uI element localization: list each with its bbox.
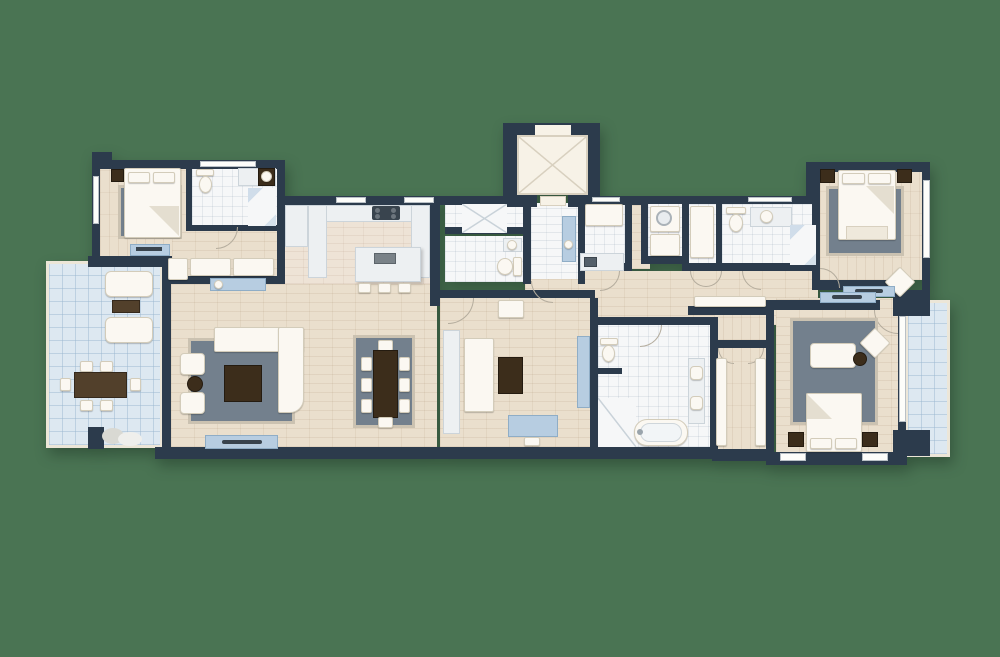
shower xyxy=(462,204,507,233)
desk xyxy=(508,415,558,437)
toilet-tank xyxy=(726,207,746,214)
elevator-door xyxy=(535,125,571,135)
wardrobe xyxy=(690,206,714,258)
lamp xyxy=(214,280,223,289)
laundry-cabinet xyxy=(585,204,623,226)
bed-pillow xyxy=(868,173,891,184)
tv xyxy=(136,247,162,251)
bed-pillow xyxy=(842,173,865,184)
bed-pillow xyxy=(128,172,150,183)
washer-drum xyxy=(656,210,672,226)
toilet xyxy=(729,214,743,232)
window xyxy=(336,197,366,203)
wall xyxy=(712,340,770,348)
side-table xyxy=(187,376,203,392)
wall xyxy=(688,306,768,315)
outdoor-chair xyxy=(80,400,93,411)
chaise-lounge xyxy=(105,271,153,297)
dining-chair xyxy=(399,378,410,392)
dining-chair xyxy=(361,378,372,392)
sofa xyxy=(810,343,856,368)
sink xyxy=(690,366,703,380)
bed-pillow xyxy=(810,438,832,449)
decorative-stones xyxy=(118,432,142,446)
wall xyxy=(766,306,774,455)
lamp xyxy=(564,240,573,249)
floor-plan-canvas xyxy=(0,0,1000,657)
front-door xyxy=(540,196,566,206)
nightstand xyxy=(788,432,804,447)
side-table xyxy=(853,352,867,366)
wall-bottom xyxy=(596,447,718,459)
bed-pillow xyxy=(835,438,857,449)
sink xyxy=(760,210,773,223)
tv xyxy=(832,295,862,299)
toilet-tank xyxy=(196,169,214,176)
bench-runner xyxy=(562,216,576,262)
elevator xyxy=(517,135,588,195)
nightstand xyxy=(111,169,124,182)
toilet-tank xyxy=(513,257,522,276)
bar-stool xyxy=(398,283,411,293)
outdoor-chair xyxy=(130,378,141,391)
sectional-sofa xyxy=(278,327,304,413)
coffee-table xyxy=(498,357,523,394)
duvet-fold xyxy=(866,186,894,214)
console-table xyxy=(694,296,766,307)
toilet xyxy=(602,345,615,362)
laundry-sink xyxy=(584,257,597,267)
desk-chair xyxy=(524,437,540,446)
bar-stool xyxy=(358,283,371,293)
dining-chair xyxy=(399,357,410,371)
duvet-fold xyxy=(806,393,832,419)
window xyxy=(93,176,99,224)
shower xyxy=(598,398,636,447)
wall xyxy=(186,169,192,231)
toilet xyxy=(199,176,212,193)
wall xyxy=(716,200,722,266)
sink xyxy=(690,396,703,410)
outdoor-chair xyxy=(60,378,71,391)
window xyxy=(592,197,620,202)
armchair xyxy=(180,353,205,375)
window xyxy=(748,197,792,202)
wall xyxy=(162,256,171,449)
dining-chair xyxy=(361,399,372,413)
outdoor-dining-table xyxy=(74,372,127,398)
dining-chair xyxy=(378,417,393,428)
wall xyxy=(88,256,172,267)
bed-pillow xyxy=(153,172,175,183)
wall-elevator xyxy=(503,195,537,207)
wall-partition xyxy=(598,368,622,374)
wall xyxy=(523,196,531,284)
chaise-lounge xyxy=(105,317,153,343)
wardrobe xyxy=(577,336,590,408)
faucet xyxy=(637,429,643,435)
wardrobe xyxy=(716,358,727,446)
wall xyxy=(277,160,285,284)
window xyxy=(200,161,256,167)
wardrobe xyxy=(755,358,766,446)
outdoor-chair xyxy=(80,361,93,372)
shower xyxy=(248,188,276,226)
nightstand xyxy=(820,169,835,183)
nightstand xyxy=(862,432,878,447)
window-threshold xyxy=(862,453,888,461)
shower xyxy=(790,225,816,265)
nightstand xyxy=(897,169,912,183)
island-sink xyxy=(374,253,396,264)
sink xyxy=(261,171,272,182)
duvet-fold xyxy=(149,206,179,236)
burner xyxy=(375,214,380,219)
dining-table xyxy=(373,350,398,418)
window xyxy=(404,197,434,203)
kitchen-counter xyxy=(308,205,327,278)
apartment-floor-plan xyxy=(0,0,1000,657)
kitchen-tall-cabinet xyxy=(285,205,308,247)
wardrobe xyxy=(233,258,274,276)
closet-cabinet xyxy=(650,234,680,256)
toilet xyxy=(497,258,513,275)
bathtub-basin xyxy=(640,423,682,442)
wardrobe xyxy=(190,258,231,276)
outdoor-chair xyxy=(100,400,113,411)
burner xyxy=(391,208,396,213)
bar-stool xyxy=(378,283,391,293)
burner xyxy=(375,208,380,213)
armchair xyxy=(180,392,205,414)
wall xyxy=(596,317,718,325)
outdoor-coffee-table xyxy=(112,300,140,313)
wall xyxy=(641,196,648,262)
wall xyxy=(625,196,632,268)
wardrobe xyxy=(443,330,460,434)
coffee-table xyxy=(224,365,262,402)
cabinet xyxy=(168,258,188,280)
wall-bottom xyxy=(712,449,774,461)
wall xyxy=(682,196,689,262)
outdoor-chair xyxy=(100,361,113,372)
sink xyxy=(507,240,517,250)
wall xyxy=(437,290,595,298)
dining-chair xyxy=(399,399,410,413)
wall-niche xyxy=(498,300,524,318)
burner xyxy=(391,214,396,219)
window-threshold xyxy=(780,453,806,461)
bed-blanket xyxy=(846,226,888,240)
window xyxy=(899,316,906,422)
window xyxy=(923,180,930,258)
daybed xyxy=(464,338,494,412)
tv xyxy=(222,440,262,444)
dining-chair xyxy=(361,357,372,371)
toilet-tank xyxy=(600,338,618,345)
